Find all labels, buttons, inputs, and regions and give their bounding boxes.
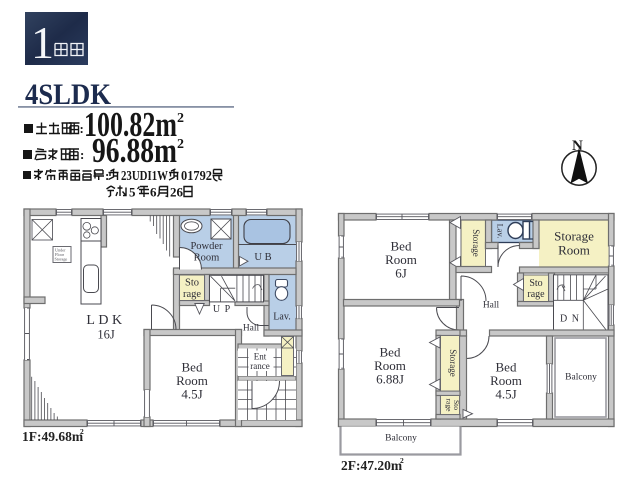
svg-text:6.88J: 6.88J xyxy=(376,372,404,387)
svg-text:Room: Room xyxy=(558,243,590,258)
svg-text:Storage: Storage xyxy=(55,257,68,262)
svg-text:U P: U P xyxy=(213,304,231,315)
svg-text:Sto: Sto xyxy=(452,400,461,410)
svg-text:rage: rage xyxy=(527,289,545,300)
svg-text:1: 1 xyxy=(31,17,54,68)
svg-text:26: 26 xyxy=(170,185,184,200)
svg-text:16J: 16J xyxy=(97,328,115,342)
svg-text:2: 2 xyxy=(177,137,184,152)
svg-text:Ent: Ent xyxy=(254,352,267,362)
svg-text:Balcony: Balcony xyxy=(565,373,597,383)
svg-text:6: 6 xyxy=(150,185,157,200)
svg-text:Room: Room xyxy=(194,253,220,264)
svg-text:Balcony: Balcony xyxy=(385,434,417,444)
svg-text::: : xyxy=(80,147,84,162)
svg-text:Sto: Sto xyxy=(185,278,199,289)
svg-text:96.88m: 96.88m xyxy=(92,131,177,170)
svg-text:2: 2 xyxy=(400,456,404,465)
svg-text:Storage: Storage xyxy=(471,229,481,257)
svg-text:Storage: Storage xyxy=(448,349,458,377)
svg-text:6J: 6J xyxy=(395,266,407,281)
svg-text:Sto: Sto xyxy=(529,278,542,289)
svg-text:2: 2 xyxy=(177,111,184,126)
svg-text:4.5J: 4.5J xyxy=(495,387,516,402)
svg-text:Lav.: Lav. xyxy=(273,312,290,323)
svg-text:rage: rage xyxy=(183,289,201,300)
svg-text:2: 2 xyxy=(80,427,84,436)
svg-text::: : xyxy=(105,168,109,183)
svg-text:Lav.: Lav. xyxy=(496,224,506,239)
svg-text:Hall: Hall xyxy=(243,324,260,334)
svg-text:2F:47.20m: 2F:47.20m xyxy=(341,458,403,473)
svg-text:Storage: Storage xyxy=(554,229,594,244)
svg-text:LDK: LDK xyxy=(86,313,125,328)
svg-text:1F:49.68m: 1F:49.68m xyxy=(22,429,84,444)
svg-text:Powder: Powder xyxy=(190,241,223,252)
svg-text:Hall: Hall xyxy=(483,301,500,311)
svg-text:01792: 01792 xyxy=(181,168,212,183)
svg-text:U B: U B xyxy=(254,252,271,263)
svg-text:4.5J: 4.5J xyxy=(181,387,202,402)
svg-text:D N: D N xyxy=(560,314,580,325)
svg-text:23UDI1W: 23UDI1W xyxy=(121,168,168,183)
svg-text:5: 5 xyxy=(129,185,136,200)
svg-text:rance: rance xyxy=(250,361,269,371)
